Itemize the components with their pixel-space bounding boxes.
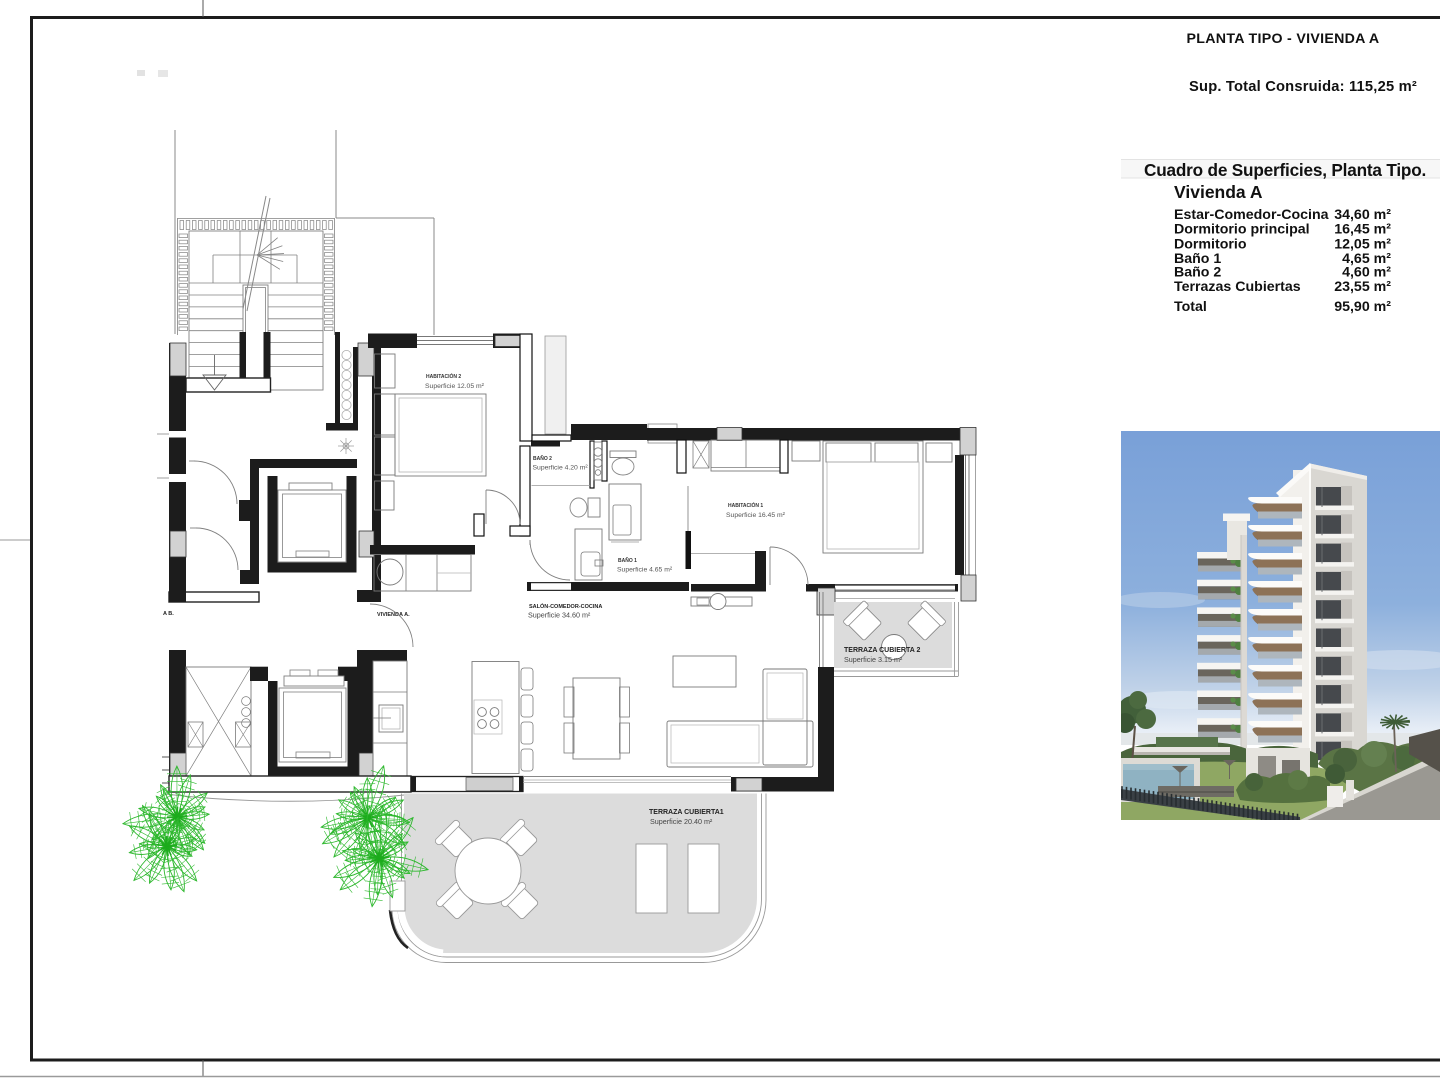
svg-text:HABITACIÓN 1: HABITACIÓN 1 bbox=[728, 501, 763, 509]
svg-text:BAÑO 1: BAÑO 1 bbox=[618, 557, 637, 564]
svg-text:Total: Total bbox=[1174, 299, 1207, 315]
svg-text:SALÓN-COMEDOR-COCINA: SALÓN-COMEDOR-COCINA bbox=[529, 602, 602, 610]
svg-text:Cuadro de Superficies, Planta: Cuadro de Superficies, Planta Tipo. bbox=[1144, 160, 1426, 180]
svg-text:Superficie 4.20 m²: Superficie 4.20 m² bbox=[533, 465, 589, 472]
svg-text:VIVIENDA A.: VIVIENDA A. bbox=[377, 612, 410, 618]
svg-text:Superficie 34.60 m²: Superficie 34.60 m² bbox=[528, 611, 591, 620]
svg-text:TERRAZA CUBIERTA 2: TERRAZA CUBIERTA 2 bbox=[844, 647, 920, 654]
svg-text:Superficie 16.45 m²: Superficie 16.45 m² bbox=[726, 512, 786, 519]
svg-text:Superficie 12.05 m²: Superficie 12.05 m² bbox=[425, 383, 485, 390]
svg-text:95,90 m²: 95,90 m² bbox=[1334, 299, 1391, 315]
svg-text:Vivienda A: Vivienda A bbox=[1174, 182, 1263, 202]
svg-text:A B.: A B. bbox=[163, 611, 174, 617]
svg-text:Sup. Total Consruida: 115,25 m: Sup. Total Consruida: 115,25 m² bbox=[1189, 79, 1417, 95]
svg-text:Superficie 3.15 m²: Superficie 3.15 m² bbox=[844, 655, 903, 664]
svg-text:Terrazas Cubiertas: Terrazas Cubiertas bbox=[1174, 279, 1301, 295]
svg-text:Superficie 4.65 m²: Superficie 4.65 m² bbox=[617, 567, 673, 574]
svg-text:Superficie 20.40 m²: Superficie 20.40 m² bbox=[650, 817, 713, 826]
svg-text:23,55 m²: 23,55 m² bbox=[1334, 279, 1391, 295]
svg-text:HABITACIÓN 2: HABITACIÓN 2 bbox=[426, 372, 461, 380]
svg-text:Dormitorio principal: Dormitorio principal bbox=[1174, 222, 1310, 238]
svg-text:TERRAZA CUBIERTA1: TERRAZA CUBIERTA1 bbox=[649, 809, 724, 816]
svg-text:PLANTA TIPO - VIVIENDA A: PLANTA TIPO - VIVIENDA A bbox=[1187, 31, 1380, 47]
svg-text:BAÑO 2: BAÑO 2 bbox=[533, 455, 552, 462]
svg-text:16,45 m²: 16,45 m² bbox=[1334, 222, 1391, 238]
